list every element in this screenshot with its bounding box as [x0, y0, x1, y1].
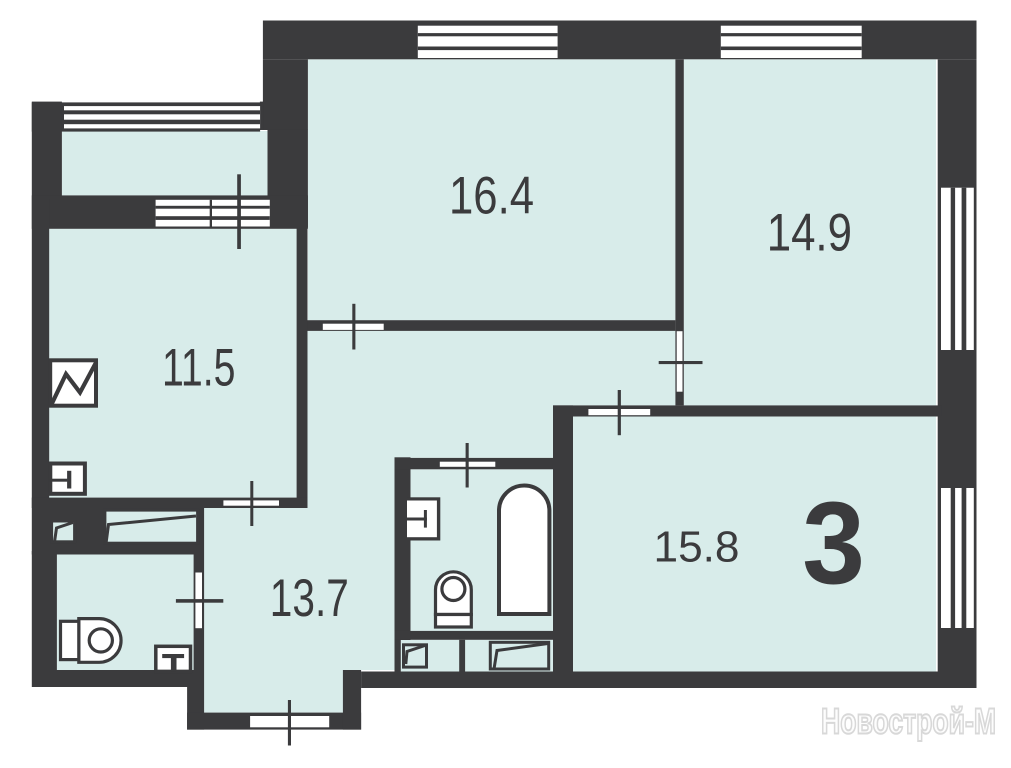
svg-text:16.4: 16.4 [449, 167, 534, 226]
svg-text:15.8: 15.8 [654, 523, 740, 572]
svg-text:Новострой-М: Новострой-М [821, 701, 996, 742]
svg-text:14.9: 14.9 [767, 204, 852, 263]
svg-text:13.7: 13.7 [270, 569, 349, 628]
svg-text:11.5: 11.5 [162, 339, 236, 398]
svg-text:3: 3 [802, 477, 865, 608]
